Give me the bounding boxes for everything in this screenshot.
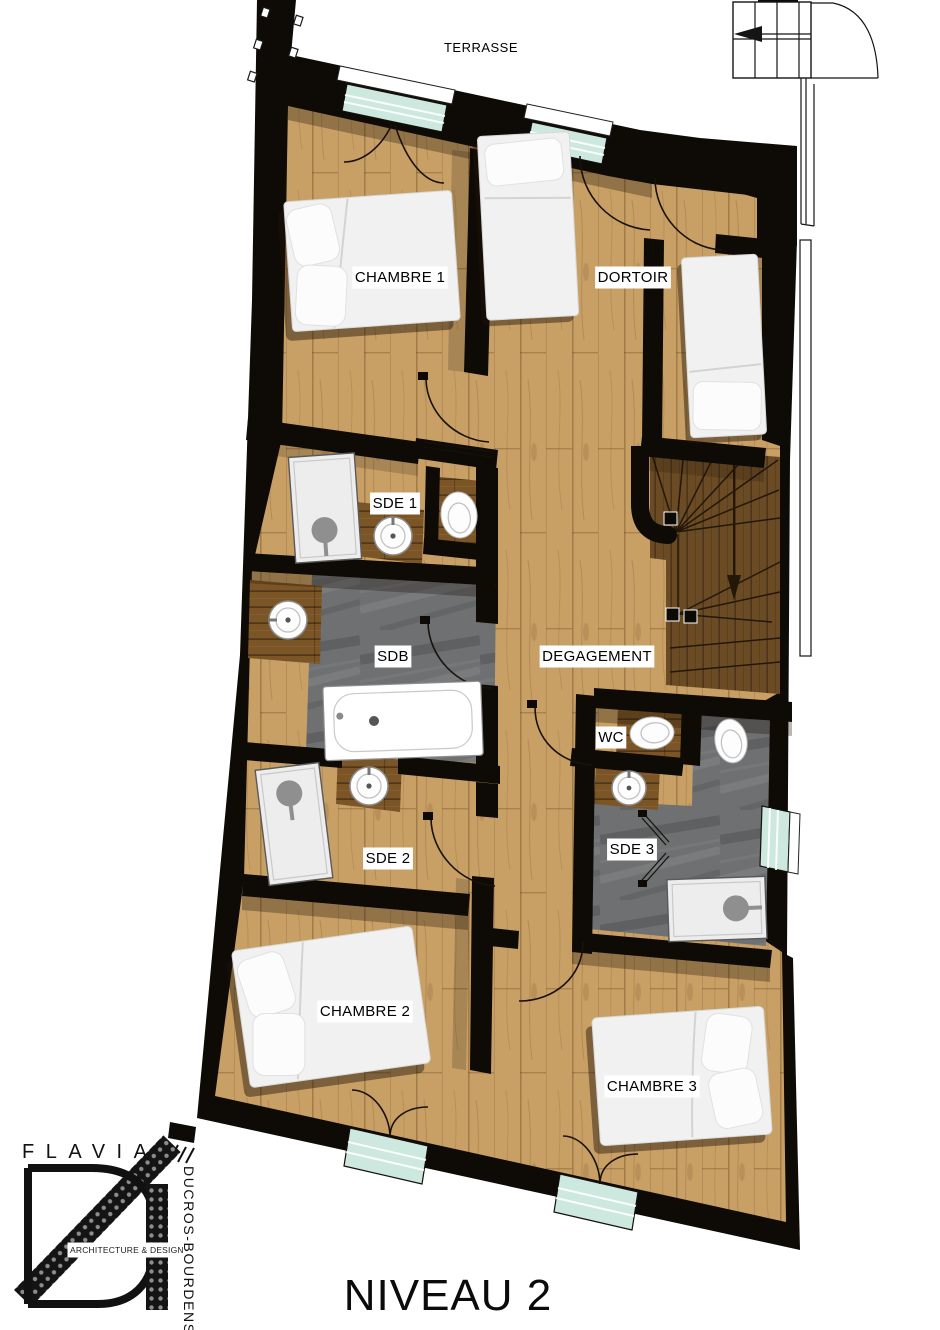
exterior-door-swing (811, 3, 878, 78)
logo-name: FLAVIA (22, 1141, 158, 1163)
stair-newel (664, 512, 677, 525)
sink-sde-2 (350, 767, 388, 805)
wall (572, 694, 596, 954)
wall (476, 466, 498, 572)
wall (490, 928, 519, 949)
room-label-chambre-3: CHAMBRE 3 (607, 1078, 697, 1095)
page-title: NIVEAU 2 (344, 1271, 553, 1320)
room-label-dortoir: DORTOIR (598, 269, 669, 286)
stair-floor (650, 446, 780, 694)
shower-sde-2 (255, 763, 333, 886)
architect-logo: FLAVIA ARCHITECTURE & DESIGN DUCROS-BOUR… (14, 1135, 197, 1330)
exterior-ledge (800, 240, 811, 656)
stair-newel (666, 608, 679, 621)
stair-wall-end (659, 526, 677, 544)
sink-sdb (269, 601, 307, 639)
room-label-chambre-1: CHAMBRE 1 (355, 269, 445, 286)
room-label-sde-1: SDE 1 (373, 495, 418, 512)
bathtub-sdb (323, 681, 483, 760)
shower-sde-3 (667, 876, 767, 941)
window-sde-3 (760, 806, 790, 872)
room-label-wc: WC (598, 729, 624, 746)
wall (470, 876, 494, 1074)
floor-plan-canvas: TERRASSE CHAMBRE 1 DORTOIR SDE 1 SDB DEG… (0, 0, 940, 1330)
bed-chambre-1 (277, 190, 461, 341)
room-label-sdb: SDB (377, 648, 409, 665)
stair-newel (684, 610, 697, 623)
room-label-degagement: DEGAGEMENT (542, 648, 652, 665)
bed-dortoir-single-1 (472, 132, 579, 327)
wall (424, 466, 440, 548)
room-label-sde-3: SDE 3 (610, 841, 655, 858)
wall (680, 702, 702, 766)
sink-sde-3 (612, 771, 646, 805)
sink-sde-1 (374, 517, 412, 555)
window-sill (788, 812, 800, 874)
building (168, 0, 878, 1250)
terrace-label: TERRASSE (444, 40, 518, 55)
logo-tagline: ARCHITECTURE & DESIGN (70, 1245, 184, 1255)
room-label-sde-2: SDE 2 (366, 850, 411, 867)
bed-dortoir-single-2 (676, 254, 767, 444)
room-label-chambre-2: CHAMBRE 2 (320, 1003, 410, 1020)
exterior-railing (801, 78, 814, 226)
shower-sde-1 (288, 453, 361, 563)
wall (476, 782, 498, 818)
logo-surname: DUCROS-BOURDENS (181, 1166, 197, 1330)
